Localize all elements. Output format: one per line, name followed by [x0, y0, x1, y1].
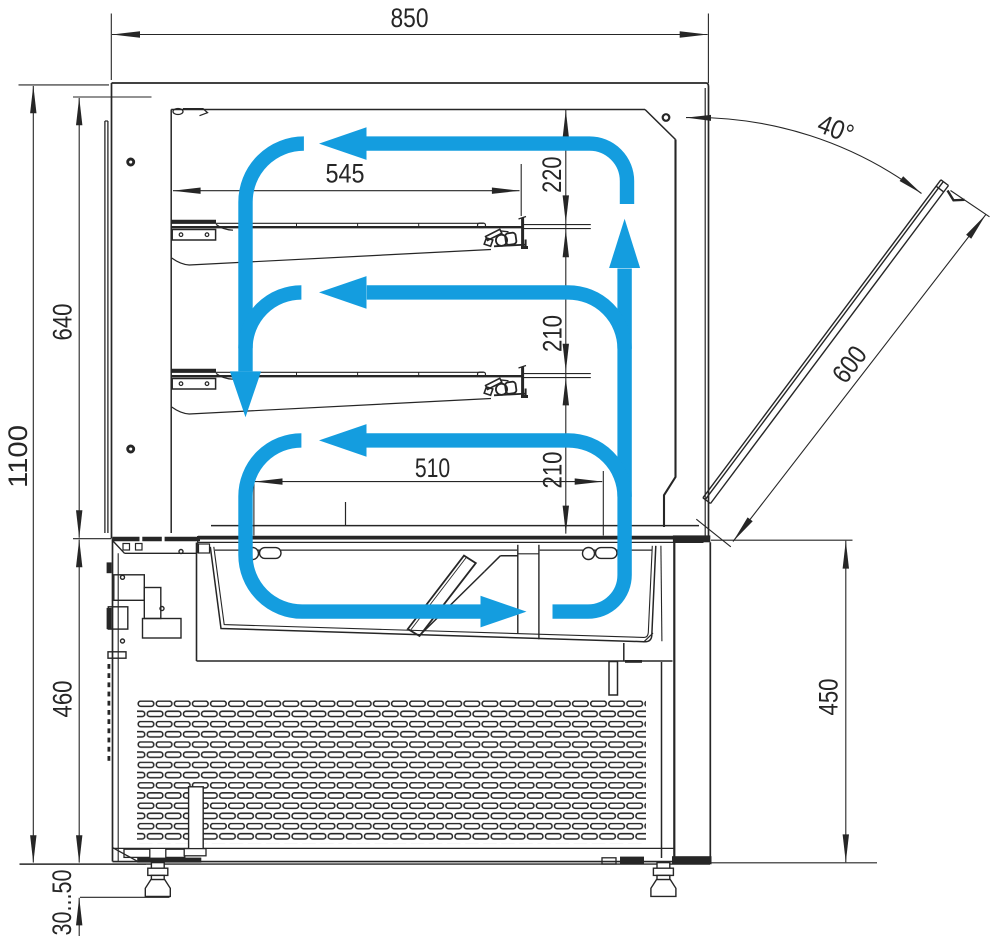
- svg-text:850: 850: [391, 3, 429, 33]
- svg-text:450: 450: [814, 679, 844, 716]
- svg-text:220: 220: [537, 156, 567, 192]
- svg-text:1100: 1100: [3, 425, 33, 488]
- svg-text:210: 210: [538, 315, 568, 352]
- svg-text:545: 545: [326, 159, 365, 189]
- svg-text:30...50: 30...50: [47, 870, 77, 936]
- svg-text:210: 210: [538, 452, 568, 489]
- svg-text:460: 460: [47, 681, 77, 718]
- svg-text:640: 640: [47, 304, 77, 341]
- svg-text:510: 510: [415, 453, 450, 483]
